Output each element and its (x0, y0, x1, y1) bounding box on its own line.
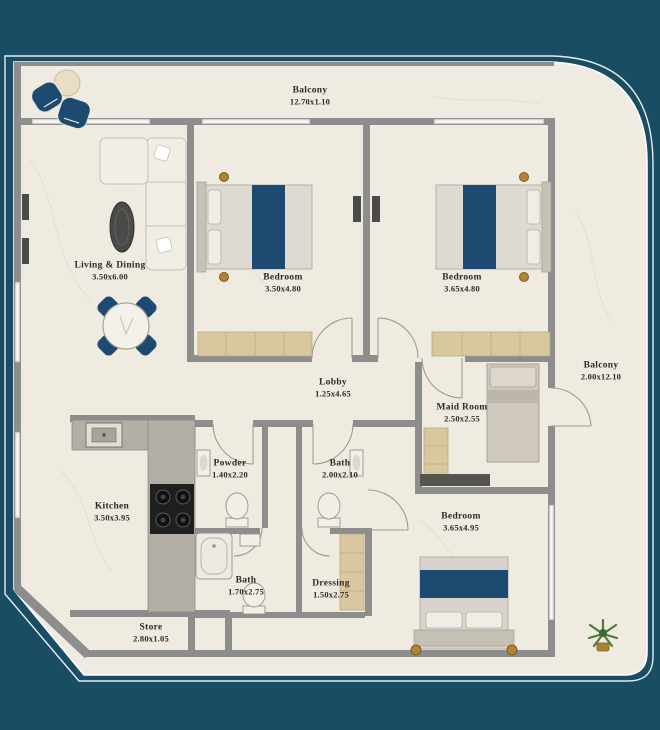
tv-unit (22, 194, 29, 220)
floor-plan: Balcony 12.70x1.10 Living & Dining 3.50x… (0, 0, 660, 730)
dresser (420, 474, 490, 486)
headboard (414, 630, 514, 646)
washbasin (240, 534, 260, 546)
room-label-powder: Powder 1.40x2.20 (212, 458, 248, 479)
sofa-chaise (100, 138, 148, 184)
blanket-band (487, 390, 539, 403)
coffee-table (110, 202, 134, 252)
tv-unit (372, 196, 380, 222)
bedside-lamp (411, 645, 421, 655)
bed-runner (420, 570, 508, 598)
room-label-balcony-top: Balcony 12.70x1.10 (290, 85, 330, 106)
sconce-light (220, 173, 229, 182)
room-label-maid-room: Maid Room 2.50x2.55 (437, 402, 488, 423)
room-label-bedroom-3: Bedroom 3.65x4.95 (441, 511, 480, 532)
pillow (527, 190, 540, 224)
room-label-bedroom-1: Bedroom 3.50x4.80 (263, 272, 302, 293)
tv-unit (353, 196, 361, 222)
room-label-living-dining: Living & Dining 3.50x6.00 (74, 260, 145, 281)
room-label-balcony-right: Balcony 2.00x12.10 (581, 360, 621, 381)
headboard (542, 182, 551, 272)
room-label-bath-2: Bath 1.70x2.75 (228, 575, 264, 596)
dining-table (103, 303, 149, 349)
tv-unit (22, 238, 29, 264)
plant-pot (597, 643, 609, 651)
room-label-lobby: Lobby 1.25x4.65 (315, 377, 351, 398)
pillow (208, 230, 221, 264)
toilet (226, 493, 248, 519)
room-label-bedroom-2: Bedroom 3.65x4.80 (442, 272, 481, 293)
sconce-light (520, 173, 529, 182)
pillow (466, 612, 502, 628)
toilet (318, 493, 340, 519)
room-label-store: Store 2.80x1.05 (133, 622, 169, 643)
bed-runner (463, 185, 496, 269)
room-label-bath-1: Bath 2.00x2.10 (322, 458, 358, 479)
pillow (527, 230, 540, 264)
sconce-light (220, 273, 229, 282)
bed-runner (252, 185, 285, 269)
headboard (197, 182, 206, 272)
bedside-lamp (507, 645, 517, 655)
pillow (490, 367, 536, 387)
pillow (208, 190, 221, 224)
floor-plan-graphic (0, 0, 660, 730)
throw-pillow (156, 237, 173, 254)
pillow (426, 612, 462, 628)
sconce-light (520, 273, 529, 282)
room-label-dressing: Dressing 1.50x2.75 (312, 578, 350, 599)
room-label-kitchen: Kitchen 3.50x3.95 (94, 501, 130, 522)
bedroom3-furniture (411, 557, 517, 655)
